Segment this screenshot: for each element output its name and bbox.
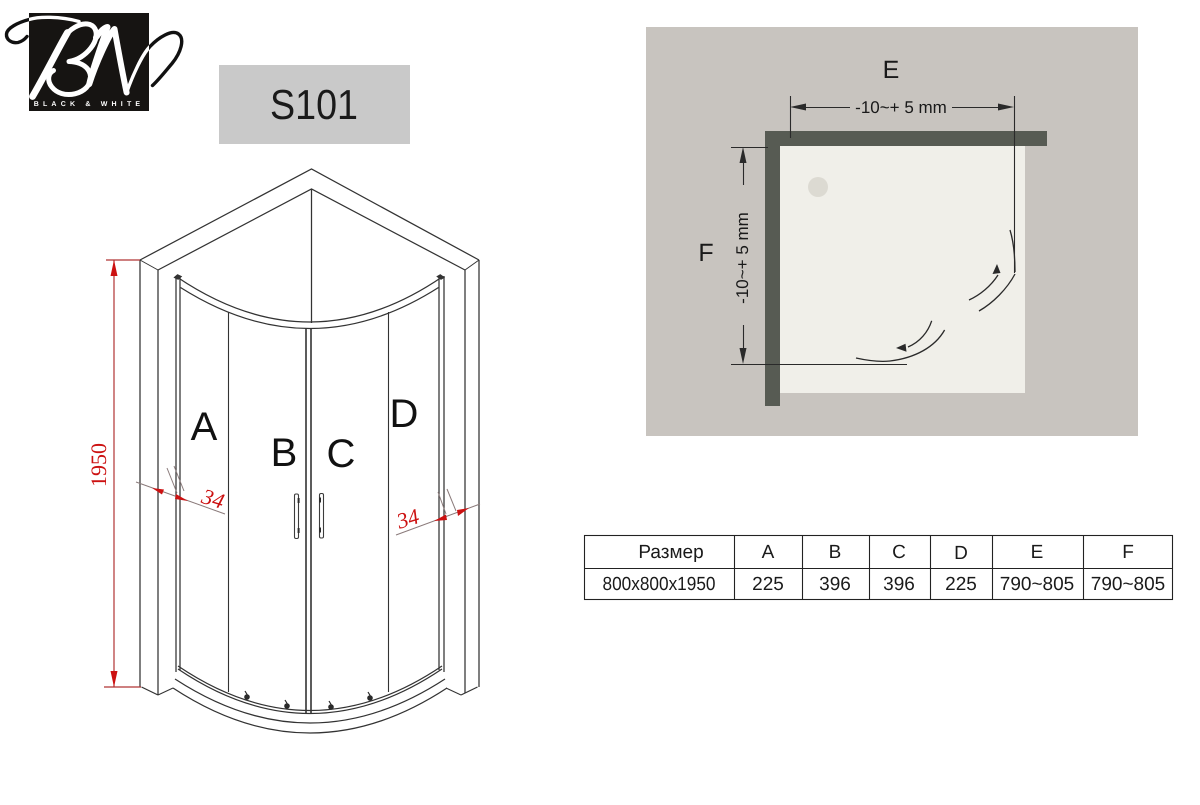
svg-text:D: D [954,543,968,564]
svg-text:-10~+ 5 mm: -10~+ 5 mm [733,212,752,304]
svg-text:B: B [829,542,842,563]
svg-text:396: 396 [819,574,851,595]
svg-text:S101: S101 [270,81,358,128]
svg-text:B: B [271,431,298,475]
svg-text:D: D [390,392,419,436]
svg-text:Размер: Размер [638,542,703,563]
svg-text:396: 396 [883,574,915,595]
svg-text:F: F [698,239,713,267]
svg-text:A: A [762,542,775,563]
svg-text:E: E [883,56,900,84]
svg-text:A: A [191,405,218,449]
svg-text:-10~+ 5 mm: -10~+ 5 mm [855,98,947,117]
svg-text:BLACK & WHITE: BLACK & WHITE [34,101,145,108]
svg-text:790~805: 790~805 [1000,574,1075,595]
svg-text:225: 225 [752,574,784,595]
svg-text:1950: 1950 [86,443,111,487]
svg-text:F: F [1122,542,1134,563]
svg-text:E: E [1031,542,1044,563]
svg-text:C: C [327,432,356,476]
svg-text:225: 225 [945,574,977,595]
svg-text:790~805: 790~805 [1091,574,1166,595]
svg-text:800x800x1950: 800x800x1950 [603,574,716,595]
svg-text:C: C [892,542,906,563]
